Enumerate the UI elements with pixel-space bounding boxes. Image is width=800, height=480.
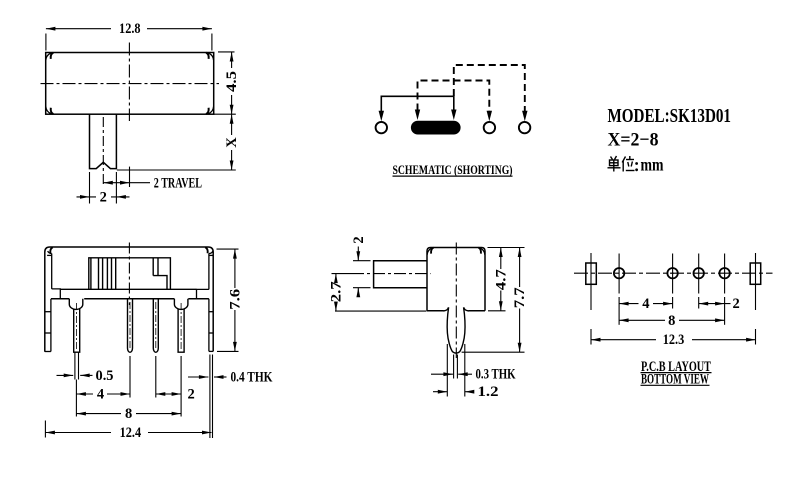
svg-text:X: X — [224, 137, 240, 148]
svg-text:2: 2 — [188, 387, 195, 403]
svg-text:2: 2 — [733, 296, 740, 312]
svg-text:12.4: 12.4 — [120, 425, 142, 441]
svg-text:4: 4 — [642, 296, 649, 312]
svg-text:SCHEMATIC (SHORTING): SCHEMATIC (SHORTING) — [393, 162, 513, 177]
svg-text:MODEL:SK13D01: MODEL:SK13D01 — [608, 106, 732, 127]
svg-text:2: 2 — [351, 236, 367, 243]
svg-text:0.4 THK: 0.4 THK — [231, 370, 274, 386]
svg-text:mm: mm — [641, 154, 664, 174]
svg-text:2 TRAVEL: 2 TRAVEL — [154, 176, 202, 192]
svg-text:0.5: 0.5 — [96, 368, 114, 384]
svg-text:2.7: 2.7 — [328, 281, 344, 302]
svg-text:2: 2 — [100, 189, 107, 205]
svg-text:4.7: 4.7 — [493, 269, 509, 290]
svg-text:4.5: 4.5 — [224, 71, 240, 92]
svg-text:X=2−8: X=2−8 — [608, 130, 659, 151]
svg-text:7.7: 7.7 — [512, 287, 528, 308]
svg-text:4: 4 — [97, 387, 104, 403]
svg-text:1.2: 1.2 — [478, 384, 499, 400]
svg-text:12.8: 12.8 — [119, 21, 141, 37]
svg-text:8: 8 — [125, 406, 132, 422]
svg-text:7.6: 7.6 — [228, 289, 244, 310]
svg-text:12.3: 12.3 — [663, 332, 685, 348]
svg-text:0.3 THK: 0.3 THK — [476, 367, 517, 383]
svg-text:8: 8 — [668, 313, 675, 329]
